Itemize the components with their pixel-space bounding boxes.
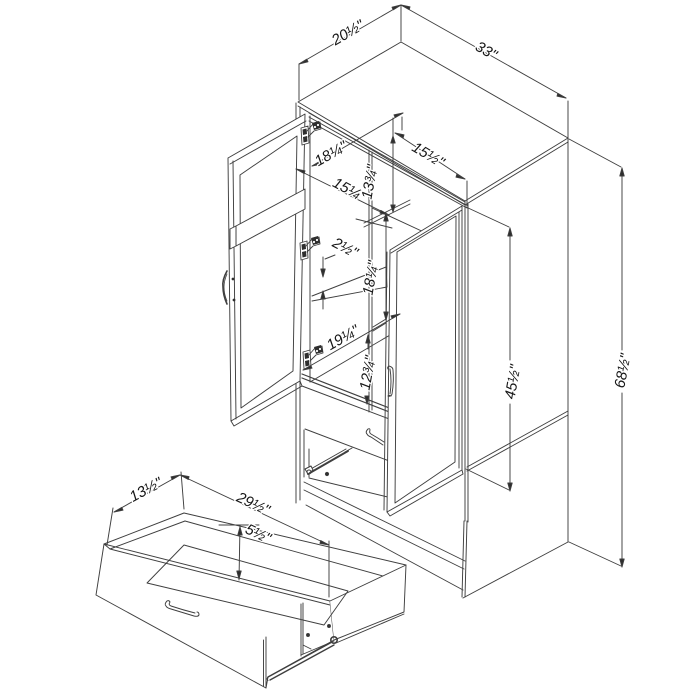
- svg-text:5½": 5½": [243, 521, 275, 548]
- svg-text:12¾": 12¾": [357, 354, 380, 392]
- svg-text:20½": 20½": [328, 17, 368, 50]
- svg-text:68½": 68½": [611, 352, 634, 390]
- svg-text:13¾": 13¾": [359, 163, 382, 201]
- svg-text:13½": 13½": [127, 474, 166, 506]
- svg-text:33": 33": [472, 38, 500, 64]
- svg-text:29½": 29½": [233, 489, 273, 520]
- svg-text:45½": 45½": [502, 363, 525, 401]
- svg-text:18¼": 18¼": [312, 138, 351, 170]
- svg-text:19¼": 19¼": [324, 322, 363, 354]
- svg-text:2½": 2½": [329, 234, 362, 262]
- svg-text:18¼": 18¼": [360, 259, 383, 297]
